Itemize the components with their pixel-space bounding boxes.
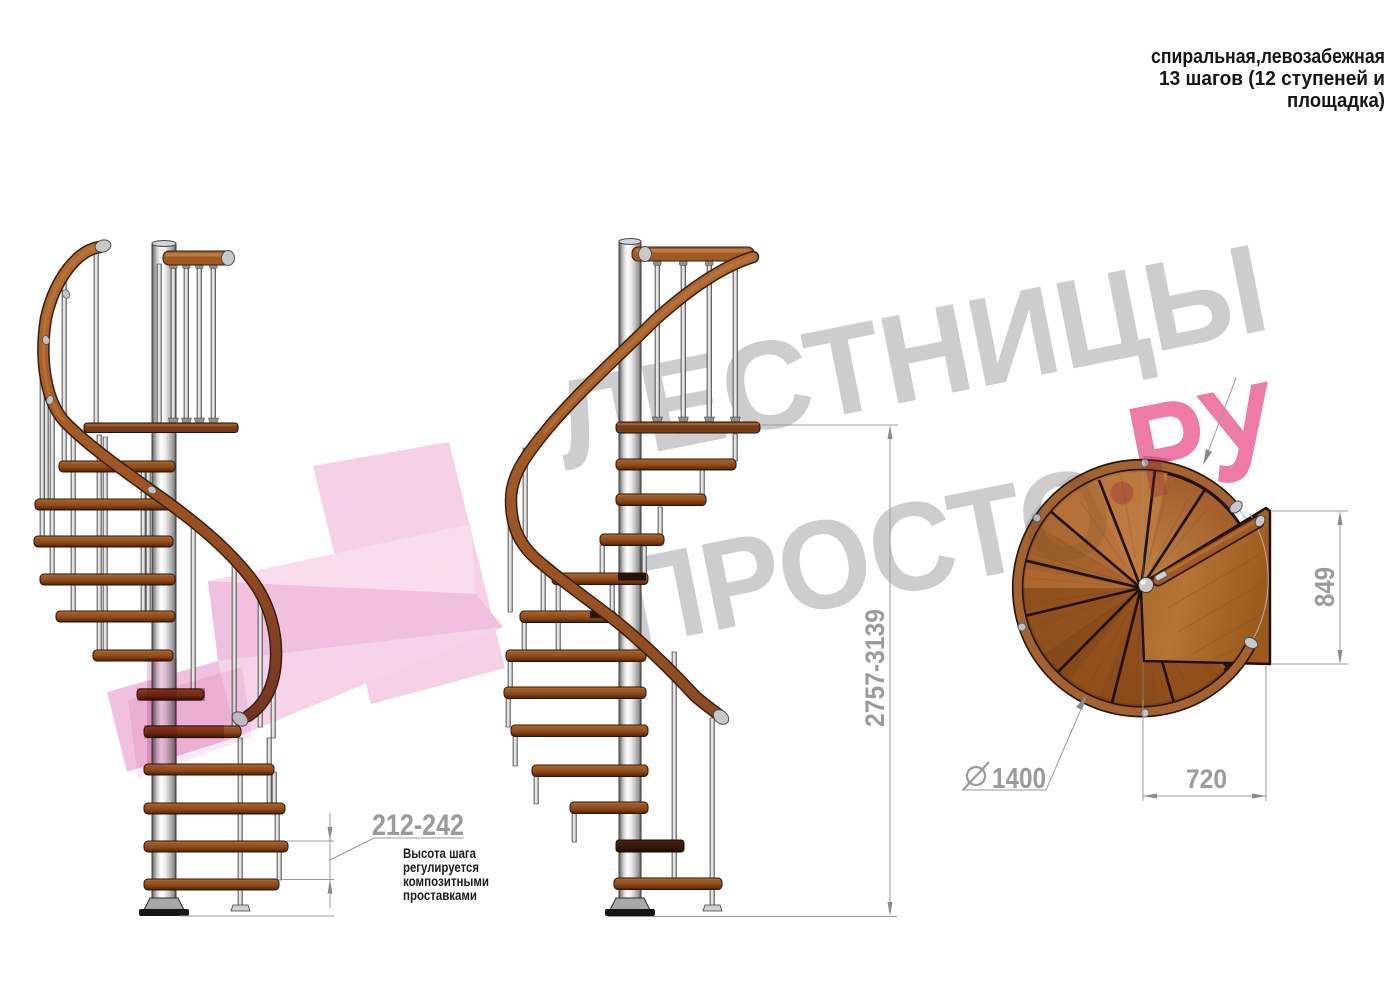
svg-text:849: 849 [1309,567,1340,607]
svg-text:212-242: 212-242 [372,809,464,842]
svg-text:регулируется: регулируется [403,860,479,875]
svg-text:1400: 1400 [992,763,1046,795]
svg-text:площадка): площадка) [1287,89,1385,112]
svg-text:проставками: проставками [403,888,477,903]
svg-text:Высота шага: Высота шага [403,846,476,861]
svg-text:спиральная,левозабежная: спиральная,левозабежная [1151,45,1385,68]
svg-text:композитными: композитными [403,874,489,889]
svg-text:13 шагов (12 ступеней и: 13 шагов (12 ступеней и [1159,67,1385,90]
svg-text:720: 720 [1186,764,1227,794]
svg-text:2757-3139: 2757-3139 [860,609,890,727]
